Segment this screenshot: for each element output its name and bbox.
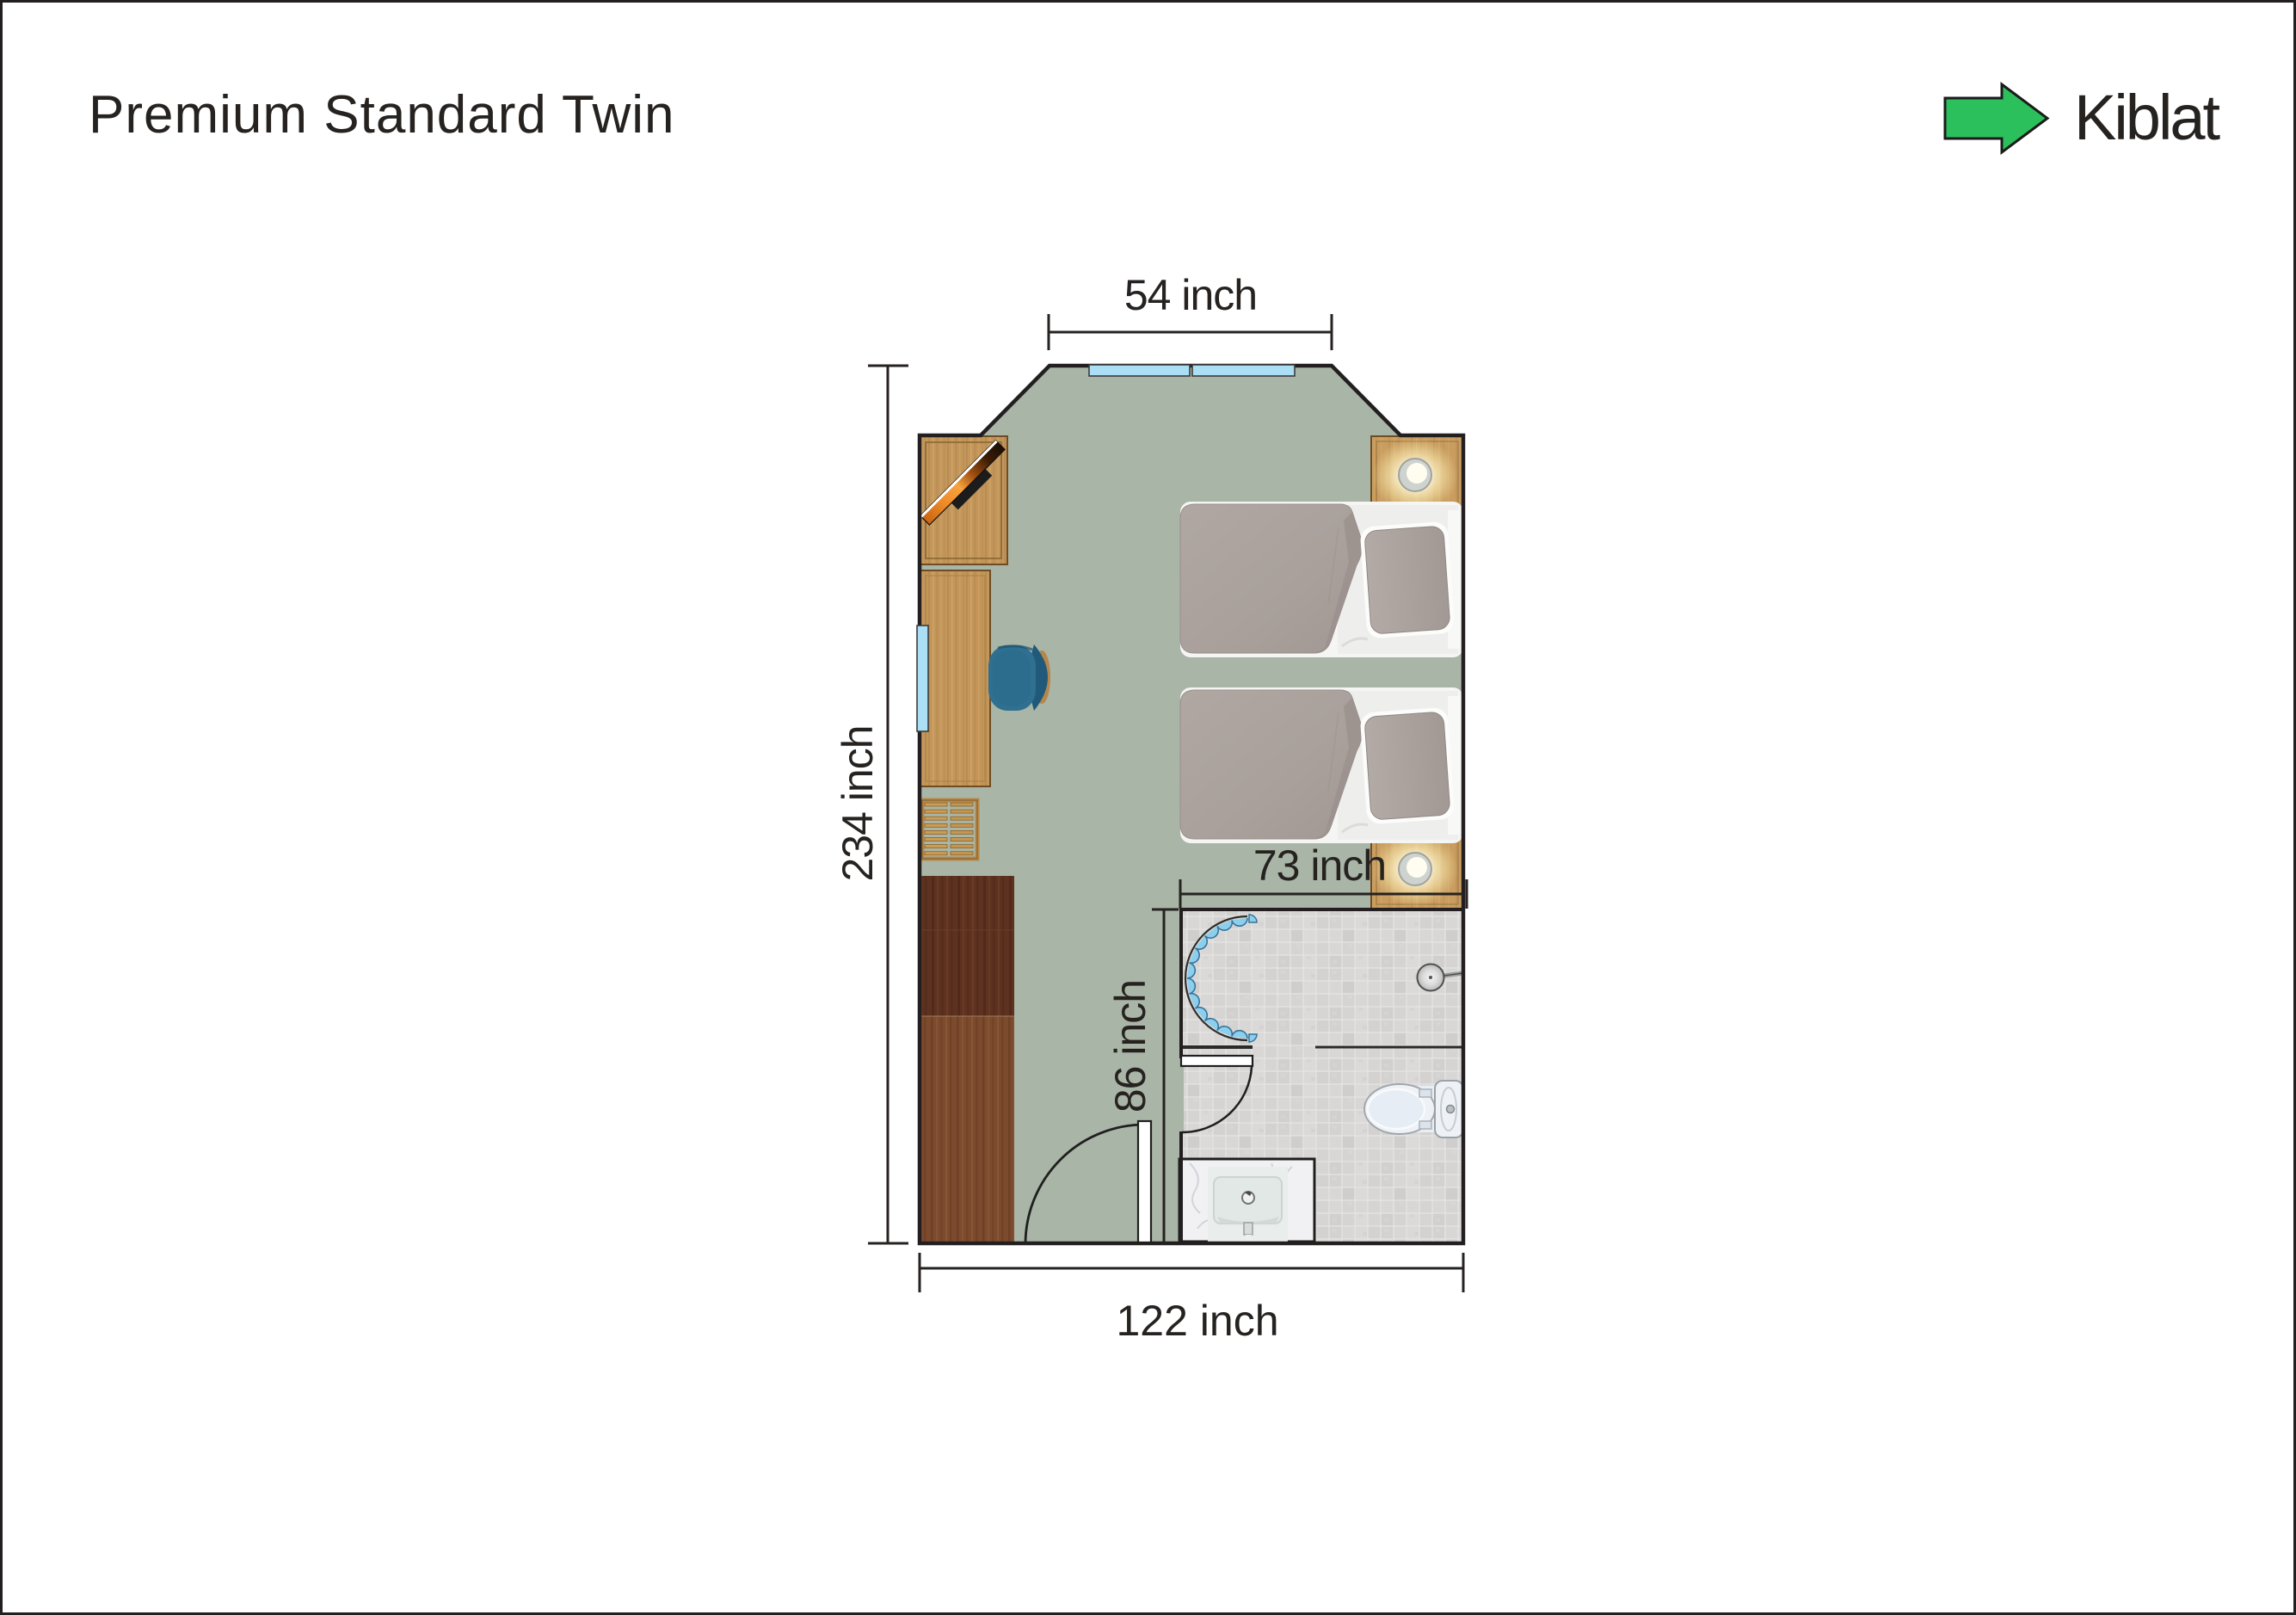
svg-text:Premium Standard Twin: Premium Standard Twin	[89, 85, 674, 145]
svg-text:73 inch: 73 inch	[1253, 841, 1386, 890]
svg-text:54 inch: 54 inch	[1124, 271, 1257, 319]
svg-text:86 inch: 86 inch	[1106, 980, 1154, 1113]
svg-text:234 inch: 234 inch	[834, 725, 882, 881]
svg-text:122 inch: 122 inch	[1116, 1297, 1278, 1345]
svg-text:Kiblat: Kiblat	[2074, 82, 2221, 153]
